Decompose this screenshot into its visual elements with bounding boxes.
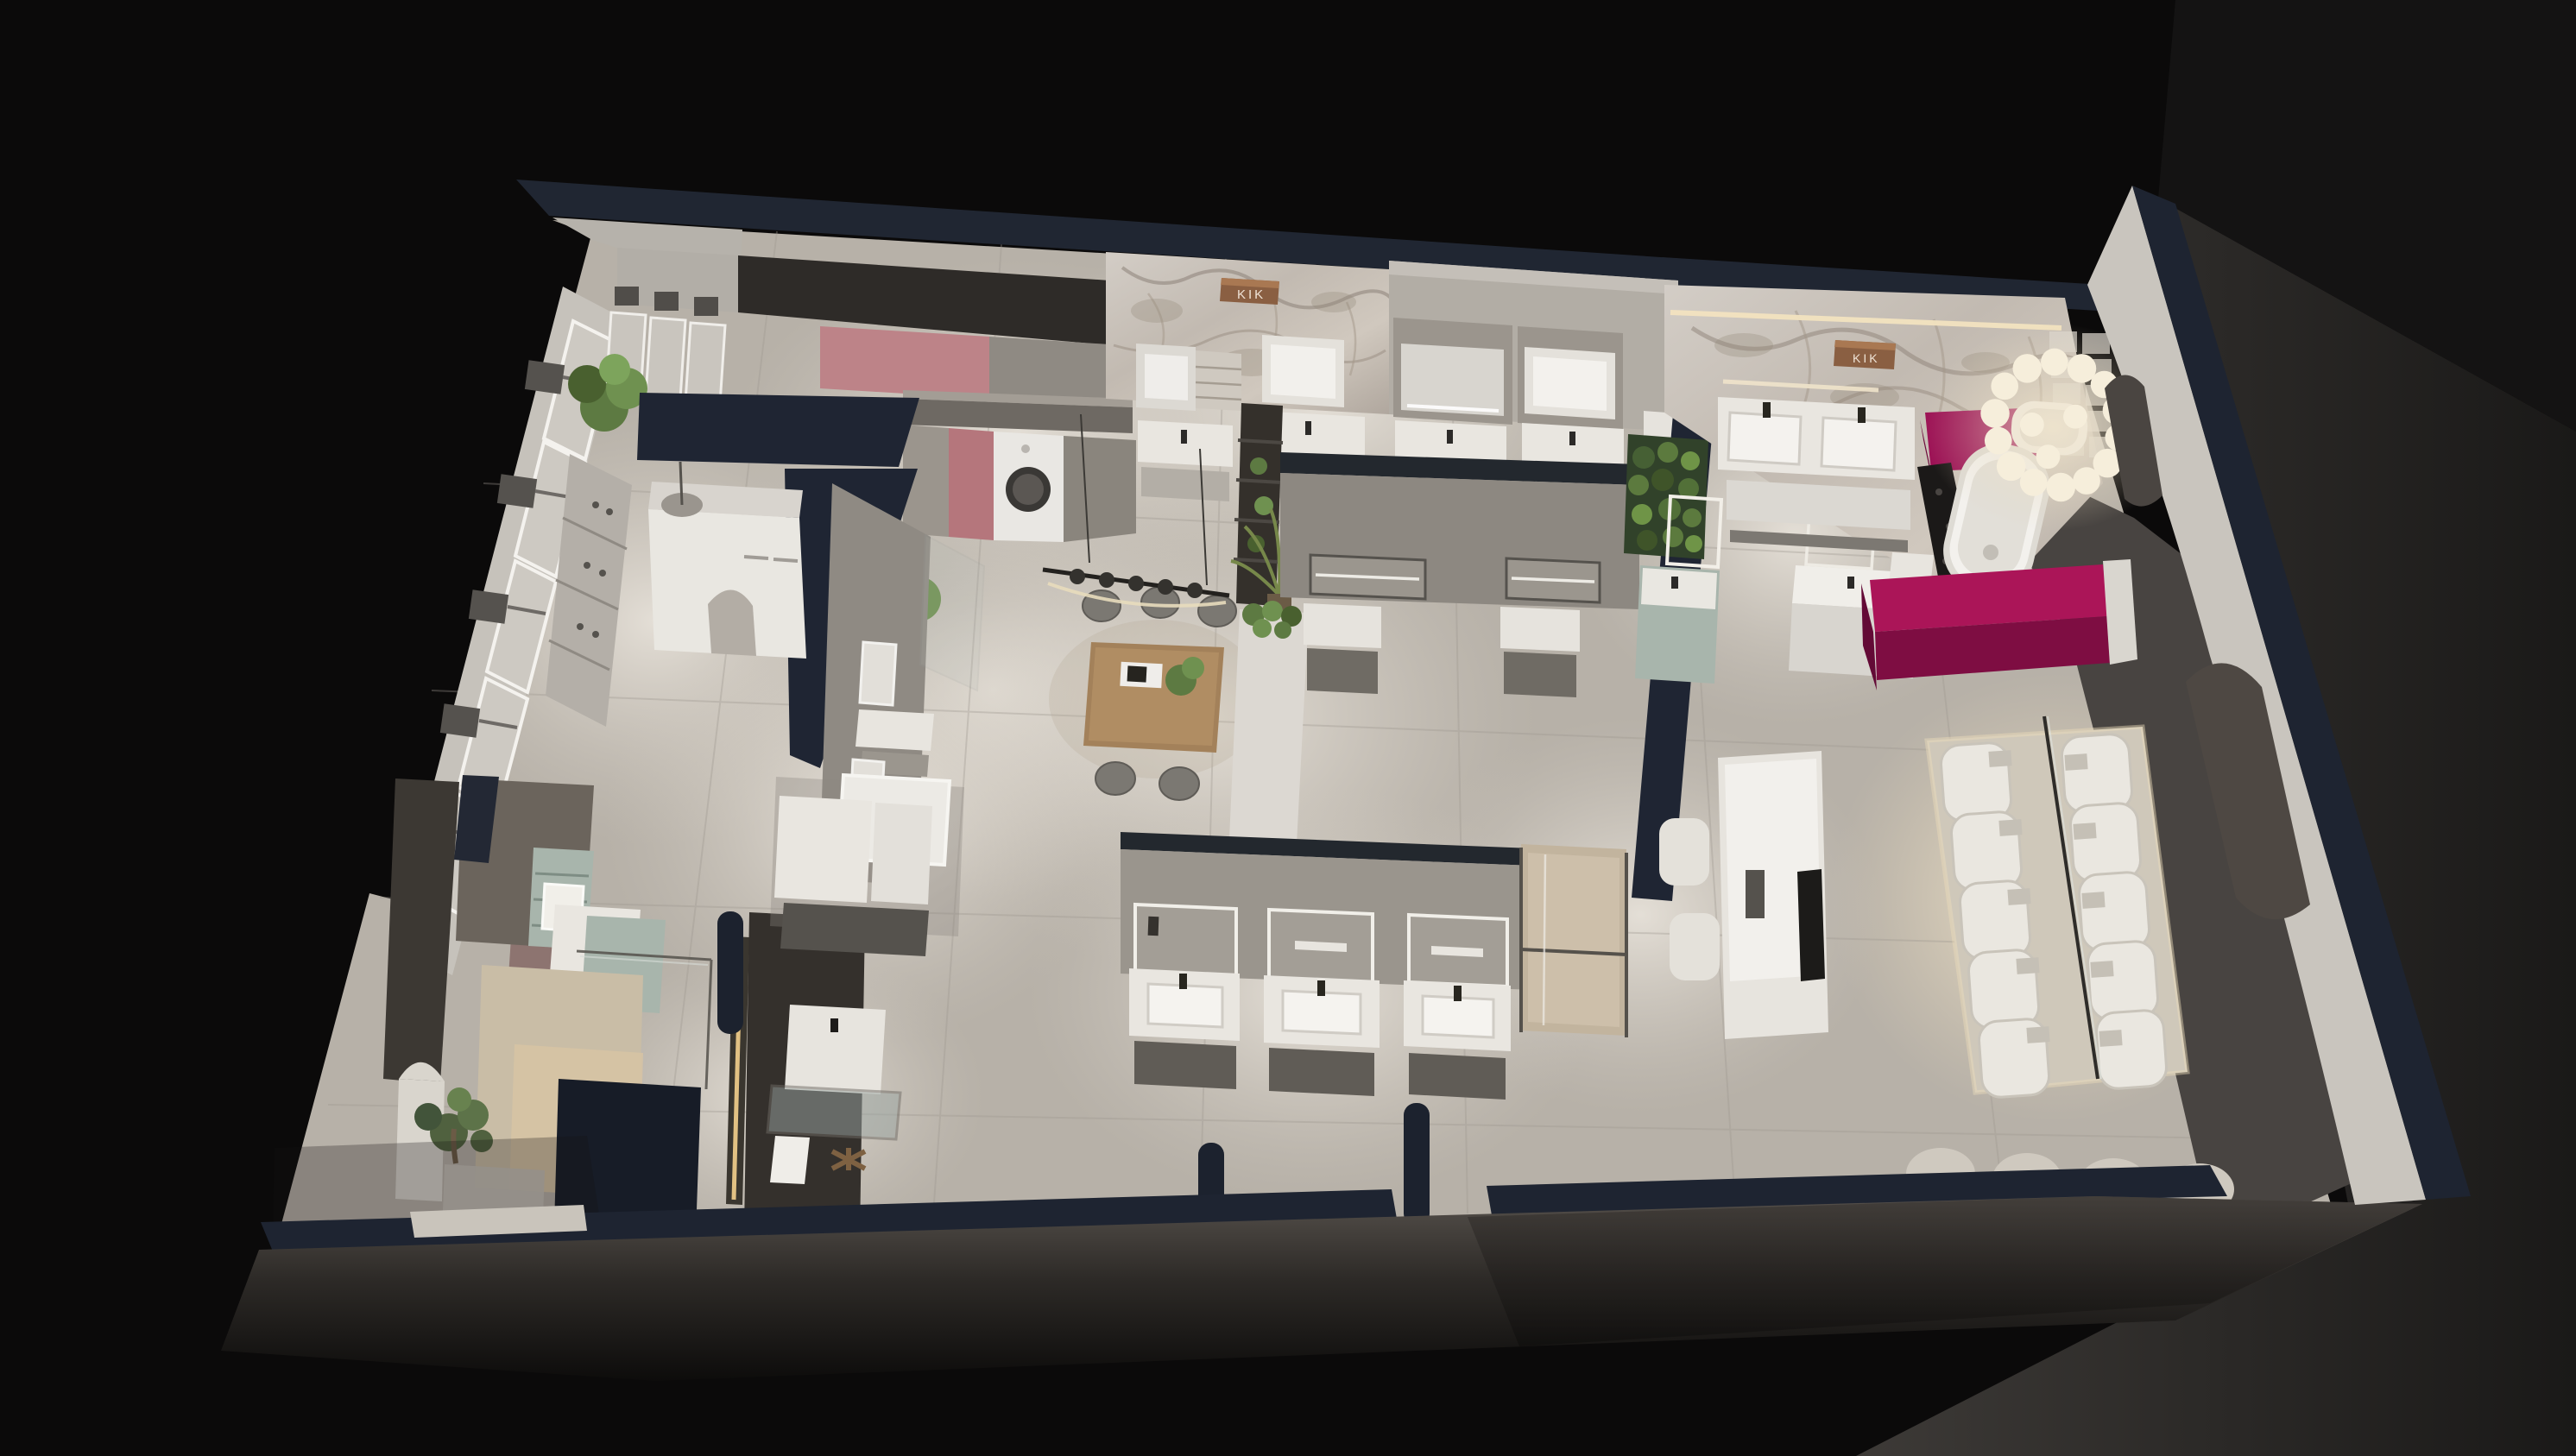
svg-text:KIK: KIK <box>1237 287 1266 302</box>
svg-text:KIK: KIK <box>1853 351 1880 365</box>
